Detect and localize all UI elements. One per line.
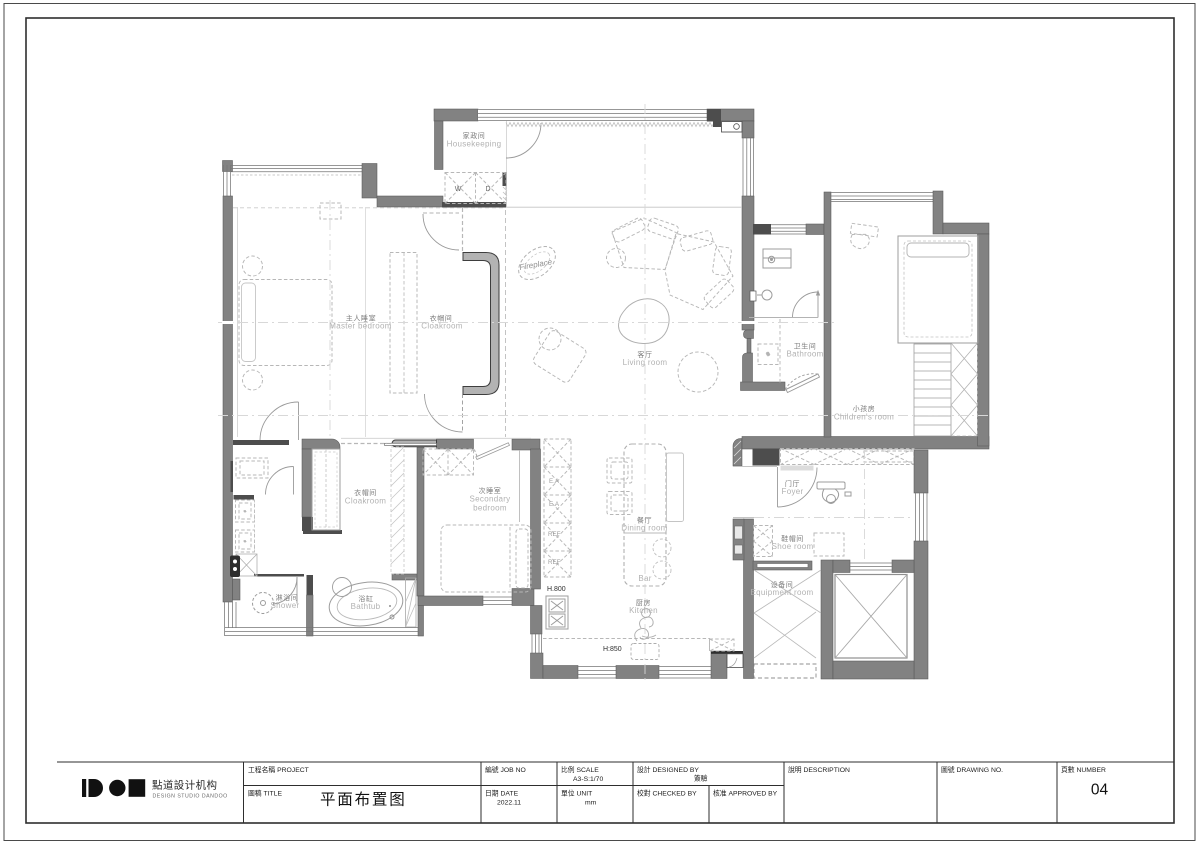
svg-text:Bathroom: Bathroom	[786, 350, 823, 359]
svg-text:Foyer: Foyer	[782, 487, 804, 496]
svg-text:比例 SCALE: 比例 SCALE	[561, 765, 599, 774]
svg-text:工程名稱 PROJECT: 工程名稱 PROJECT	[248, 765, 309, 774]
svg-text:簽驗: 簽驗	[694, 774, 708, 783]
svg-text:單位 UNIT: 單位 UNIT	[561, 789, 592, 798]
svg-text:mm: mm	[585, 800, 597, 807]
svg-text:H:850: H:850	[603, 646, 622, 653]
svg-text:Dining room: Dining room	[621, 524, 667, 533]
svg-text:Cloakroom: Cloakroom	[345, 497, 386, 506]
svg-text:Housekeeping: Housekeeping	[447, 140, 502, 149]
svg-text:日期 DATE: 日期 DATE	[485, 790, 519, 798]
svg-text:W: W	[455, 186, 462, 193]
svg-text:E.A: E.A	[549, 501, 560, 508]
svg-text:Shoe room: Shoe room	[772, 542, 814, 551]
svg-text:編號 JOB NO: 編號 JOB NO	[485, 765, 526, 774]
svg-text:REF: REF	[548, 559, 561, 566]
svg-text:Children's room: Children's room	[834, 413, 894, 422]
svg-text:Secondary: Secondary	[470, 495, 511, 504]
svg-text:核准 APPROVED BY: 核准 APPROVED BY	[713, 789, 778, 798]
svg-text:REF: REF	[548, 531, 561, 538]
svg-text:E.A: E.A	[549, 478, 560, 485]
svg-text:Living room: Living room	[623, 358, 668, 367]
svg-text:點道設计机构: 點道設计机构	[152, 779, 217, 792]
svg-text:平面布置图: 平面布置图	[320, 791, 407, 809]
svg-text:設計 DESIGNED BY: 設計 DESIGNED BY	[637, 765, 699, 774]
svg-text:bedroom: bedroom	[473, 504, 507, 513]
svg-text:圖稿 TITLE: 圖稿 TITLE	[248, 789, 282, 798]
svg-text:H.800: H.800	[547, 586, 566, 593]
svg-text:頁數 NUMBER: 頁數 NUMBER	[1061, 765, 1106, 774]
svg-text:DESIGN STUDIO DANDOO: DESIGN STUDIO DANDOO	[153, 794, 228, 800]
svg-text:Kitchen: Kitchen	[629, 606, 658, 615]
svg-text:D: D	[485, 186, 490, 193]
svg-text:04: 04	[1091, 782, 1109, 799]
svg-text:2022.11: 2022.11	[497, 800, 521, 807]
svg-text:Bathtub: Bathtub	[351, 602, 381, 611]
svg-text:校對 CHECKED BY: 校對 CHECKED BY	[637, 789, 697, 798]
svg-text:A3-S:1/70: A3-S:1/70	[573, 776, 603, 783]
svg-text:Bar: Bar	[638, 574, 651, 583]
svg-text:Shower: Shower	[271, 601, 300, 610]
svg-text:圖號 DRAWING NO.: 圖號 DRAWING NO.	[941, 765, 1003, 774]
svg-text:Master bedroom: Master bedroom	[329, 322, 391, 331]
svg-text:Equipment room: Equipment room	[751, 588, 814, 597]
svg-text:說明 DESCRIPTION: 說明 DESCRIPTION	[788, 765, 850, 774]
svg-text:Cloakroom: Cloakroom	[421, 322, 462, 331]
